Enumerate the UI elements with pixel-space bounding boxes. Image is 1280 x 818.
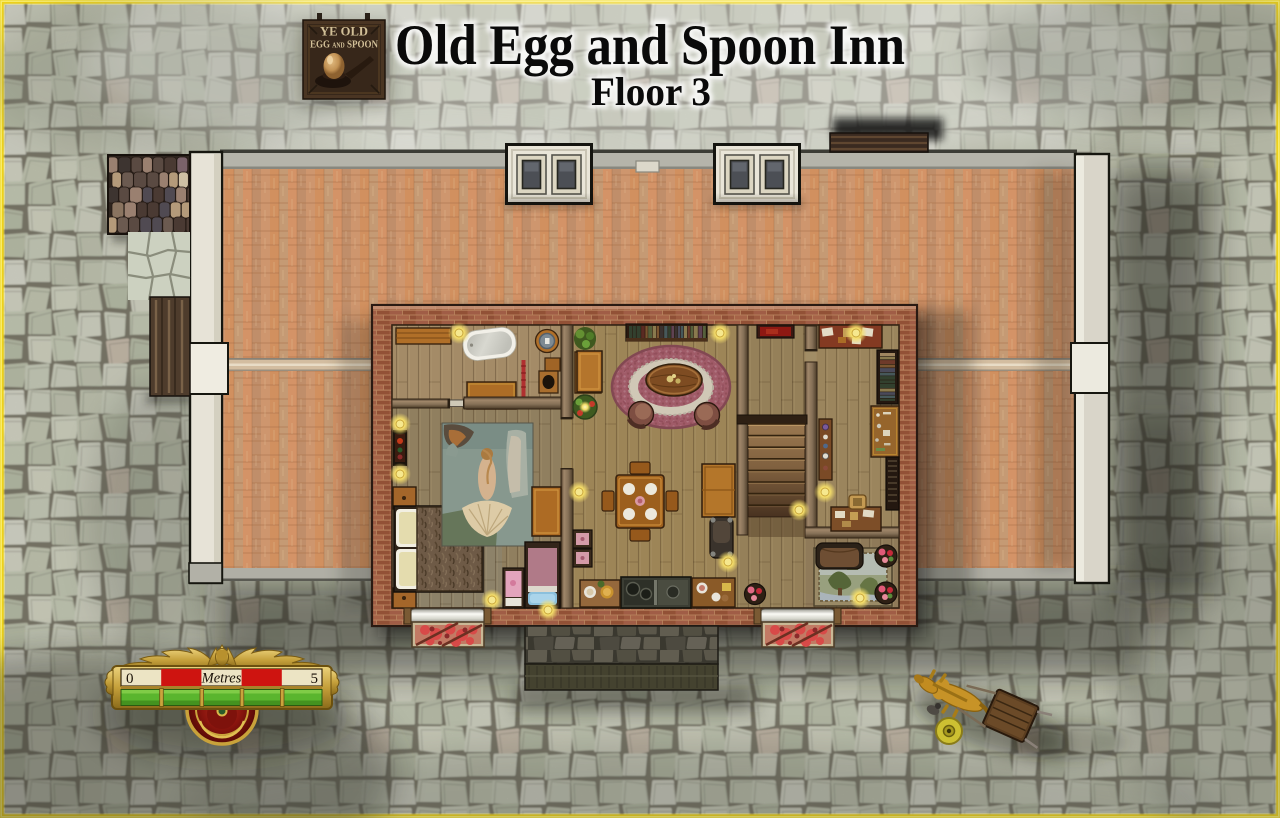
- svg-text:Metres: Metres: [201, 671, 242, 687]
- svg-text:Old Egg and Spoon Inn: Old Egg and Spoon Inn: [395, 14, 905, 77]
- svg-text:YE OLD: YE OLD: [320, 25, 368, 39]
- svg-text:Floor 3: Floor 3: [591, 69, 711, 114]
- svg-text:EGG AND SPOON: EGG AND SPOON: [310, 39, 378, 51]
- svg-text:5: 5: [311, 671, 319, 687]
- svg-text:0: 0: [126, 671, 134, 687]
